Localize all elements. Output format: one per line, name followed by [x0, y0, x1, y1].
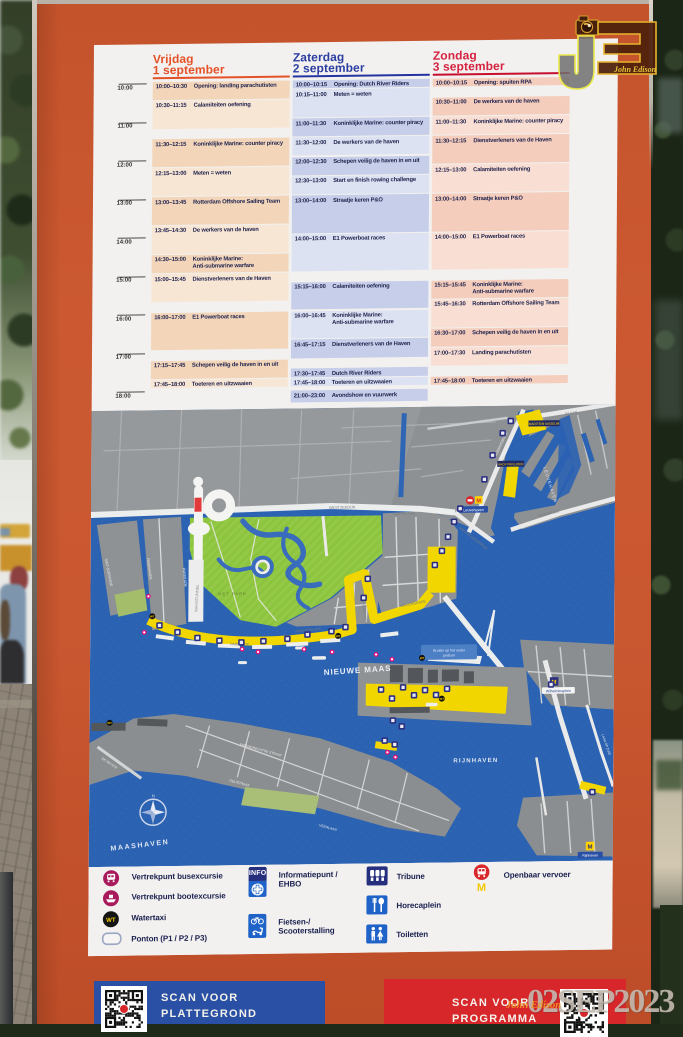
svg-text:John Edison: John Edison [613, 65, 657, 74]
svg-text:WESTZEEDIJK: WESTZEEDIJK [329, 505, 356, 510]
svg-text:WT: WT [336, 634, 341, 638]
svg-text:Rijnhaven: Rijnhaven [582, 853, 598, 857]
svg-text:RIJNHAVEN: RIJNHAVEN [453, 758, 498, 765]
svg-text:WT: WT [107, 721, 112, 725]
svg-text:N: N [152, 793, 155, 798]
svg-text:WT: WT [106, 918, 116, 924]
svg-text:Bruisin op het water: Bruisin op het water [433, 648, 466, 652]
svg-text:Wilhelminaplein: Wilhelminaplein [546, 689, 571, 693]
svg-text:VASTELAND: VASTELAND [393, 512, 416, 517]
svg-text:Leuvehaven: Leuvehaven [463, 508, 484, 512]
svg-text:M: M [476, 498, 481, 504]
svg-text:AHOY PAVILJOEN: AHOY PAVILJOEN [498, 462, 523, 466]
svg-text:MARITIEM MUSEUM: MARITIEM MUSEUM [529, 422, 560, 426]
svg-text:WT: WT [150, 614, 155, 618]
svg-text:M: M [587, 845, 592, 851]
svg-text:HET PARK: HET PARK [218, 591, 247, 596]
svg-text:podium: podium [443, 653, 455, 657]
svg-text:M: M [477, 882, 486, 894]
svg-text:WT: WT [440, 697, 445, 701]
svg-text:WT: WT [420, 656, 425, 660]
